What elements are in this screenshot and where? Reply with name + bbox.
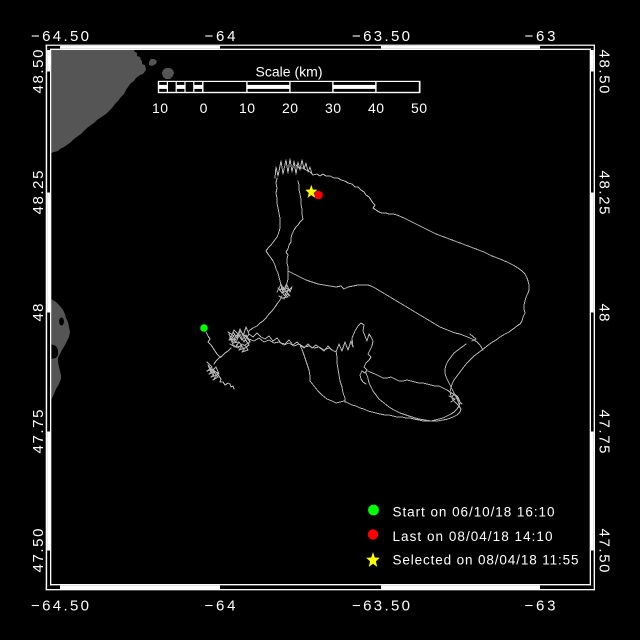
- svg-text:48: 48: [30, 304, 47, 322]
- svg-text:48: 48: [596, 304, 613, 322]
- svg-text:−63.50: −63.50: [352, 598, 410, 615]
- svg-text:48.25: 48.25: [596, 171, 613, 215]
- svg-text:47.50: 47.50: [596, 529, 613, 573]
- svg-text:Selected on 08/04/18 11:55: Selected on 08/04/18 11:55: [393, 553, 579, 568]
- svg-text:−64.50: −64.50: [31, 28, 89, 45]
- svg-text:10: 10: [152, 100, 168, 116]
- svg-text:−64.50: −64.50: [31, 598, 89, 615]
- svg-text:48.50: 48.50: [596, 50, 613, 94]
- svg-text:47.50: 47.50: [30, 529, 47, 573]
- svg-text:Start on 06/10/18 16:10: Start on 06/10/18 16:10: [393, 505, 555, 520]
- svg-text:−63: −63: [525, 28, 556, 45]
- svg-text:10: 10: [239, 100, 255, 116]
- svg-text:30: 30: [325, 100, 341, 116]
- svg-text:48.50: 48.50: [30, 50, 47, 94]
- svg-text:−63.50: −63.50: [352, 28, 410, 45]
- svg-text:20: 20: [282, 100, 298, 116]
- svg-text:−64: −64: [205, 28, 236, 45]
- svg-text:48.25: 48.25: [30, 171, 47, 215]
- svg-text:40: 40: [368, 100, 384, 116]
- svg-text:47.75: 47.75: [596, 410, 613, 454]
- svg-text:Scale (km): Scale (km): [256, 64, 323, 80]
- svg-text:−63: −63: [525, 598, 556, 615]
- svg-text:50: 50: [411, 100, 427, 116]
- svg-text:Last on 08/04/18 14:10: Last on 08/04/18 14:10: [393, 529, 553, 544]
- svg-text:0: 0: [200, 100, 208, 116]
- svg-text:−64: −64: [205, 598, 236, 615]
- svg-text:47.75: 47.75: [30, 410, 47, 454]
